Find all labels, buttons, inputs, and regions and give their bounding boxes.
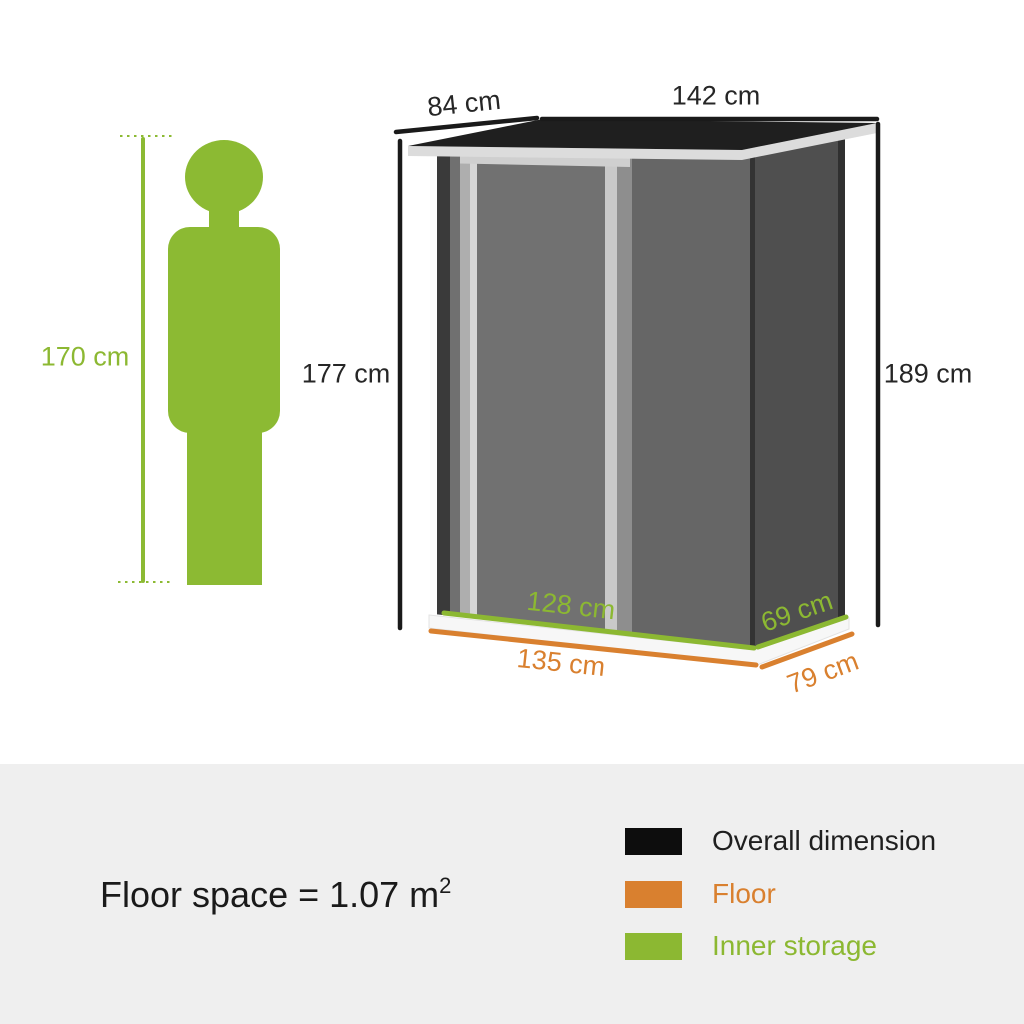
shed-front-wall-left-panel [450, 150, 460, 617]
legend-label-inner-storage: Inner storage [712, 932, 877, 960]
front-height-label: 177 cm [302, 361, 391, 388]
shed-side-wall-right-edge [838, 135, 845, 620]
shed-front-wall-left-edge [437, 150, 450, 616]
shed-door-frame-left-post-highlight [470, 151, 477, 619]
person-legs [187, 420, 262, 585]
person-figure [168, 140, 280, 585]
shed-front-wall [632, 154, 755, 648]
shed-door-panel [477, 151, 605, 633]
shed-door-frame-right-post [605, 154, 617, 634]
legend-label-floor: Floor [712, 880, 776, 908]
shed-door-frame-right-shadow [617, 154, 632, 635]
back-height-label: 189 cm [884, 361, 973, 388]
floor-space-main: Floor space = 1.07 m [100, 874, 439, 915]
legend-swatch-inner-storage [625, 933, 682, 960]
legend-label-overall-dimension: Overall dimension [712, 827, 936, 855]
person-height-label: 170 cm [41, 344, 130, 371]
legend-swatch-overall-dimension [625, 828, 682, 855]
shed-side-wall [755, 135, 845, 649]
shed-door-frame-left-post [460, 151, 470, 618]
legend-swatch-floor [625, 881, 682, 908]
floor-space-superscript: 2 [439, 873, 451, 898]
roof-width-label: 142 cm [672, 83, 761, 110]
person-head [185, 140, 263, 214]
shed-dimension-drawing [0, 0, 1024, 764]
floor-space-text: Floor space = 1.07 m2 [100, 873, 451, 917]
person-torso [168, 227, 280, 433]
product-dimension-diagram: 170 cm 84 cm 142 cm 177 cm 189 cm 128 cm… [0, 0, 1024, 1024]
